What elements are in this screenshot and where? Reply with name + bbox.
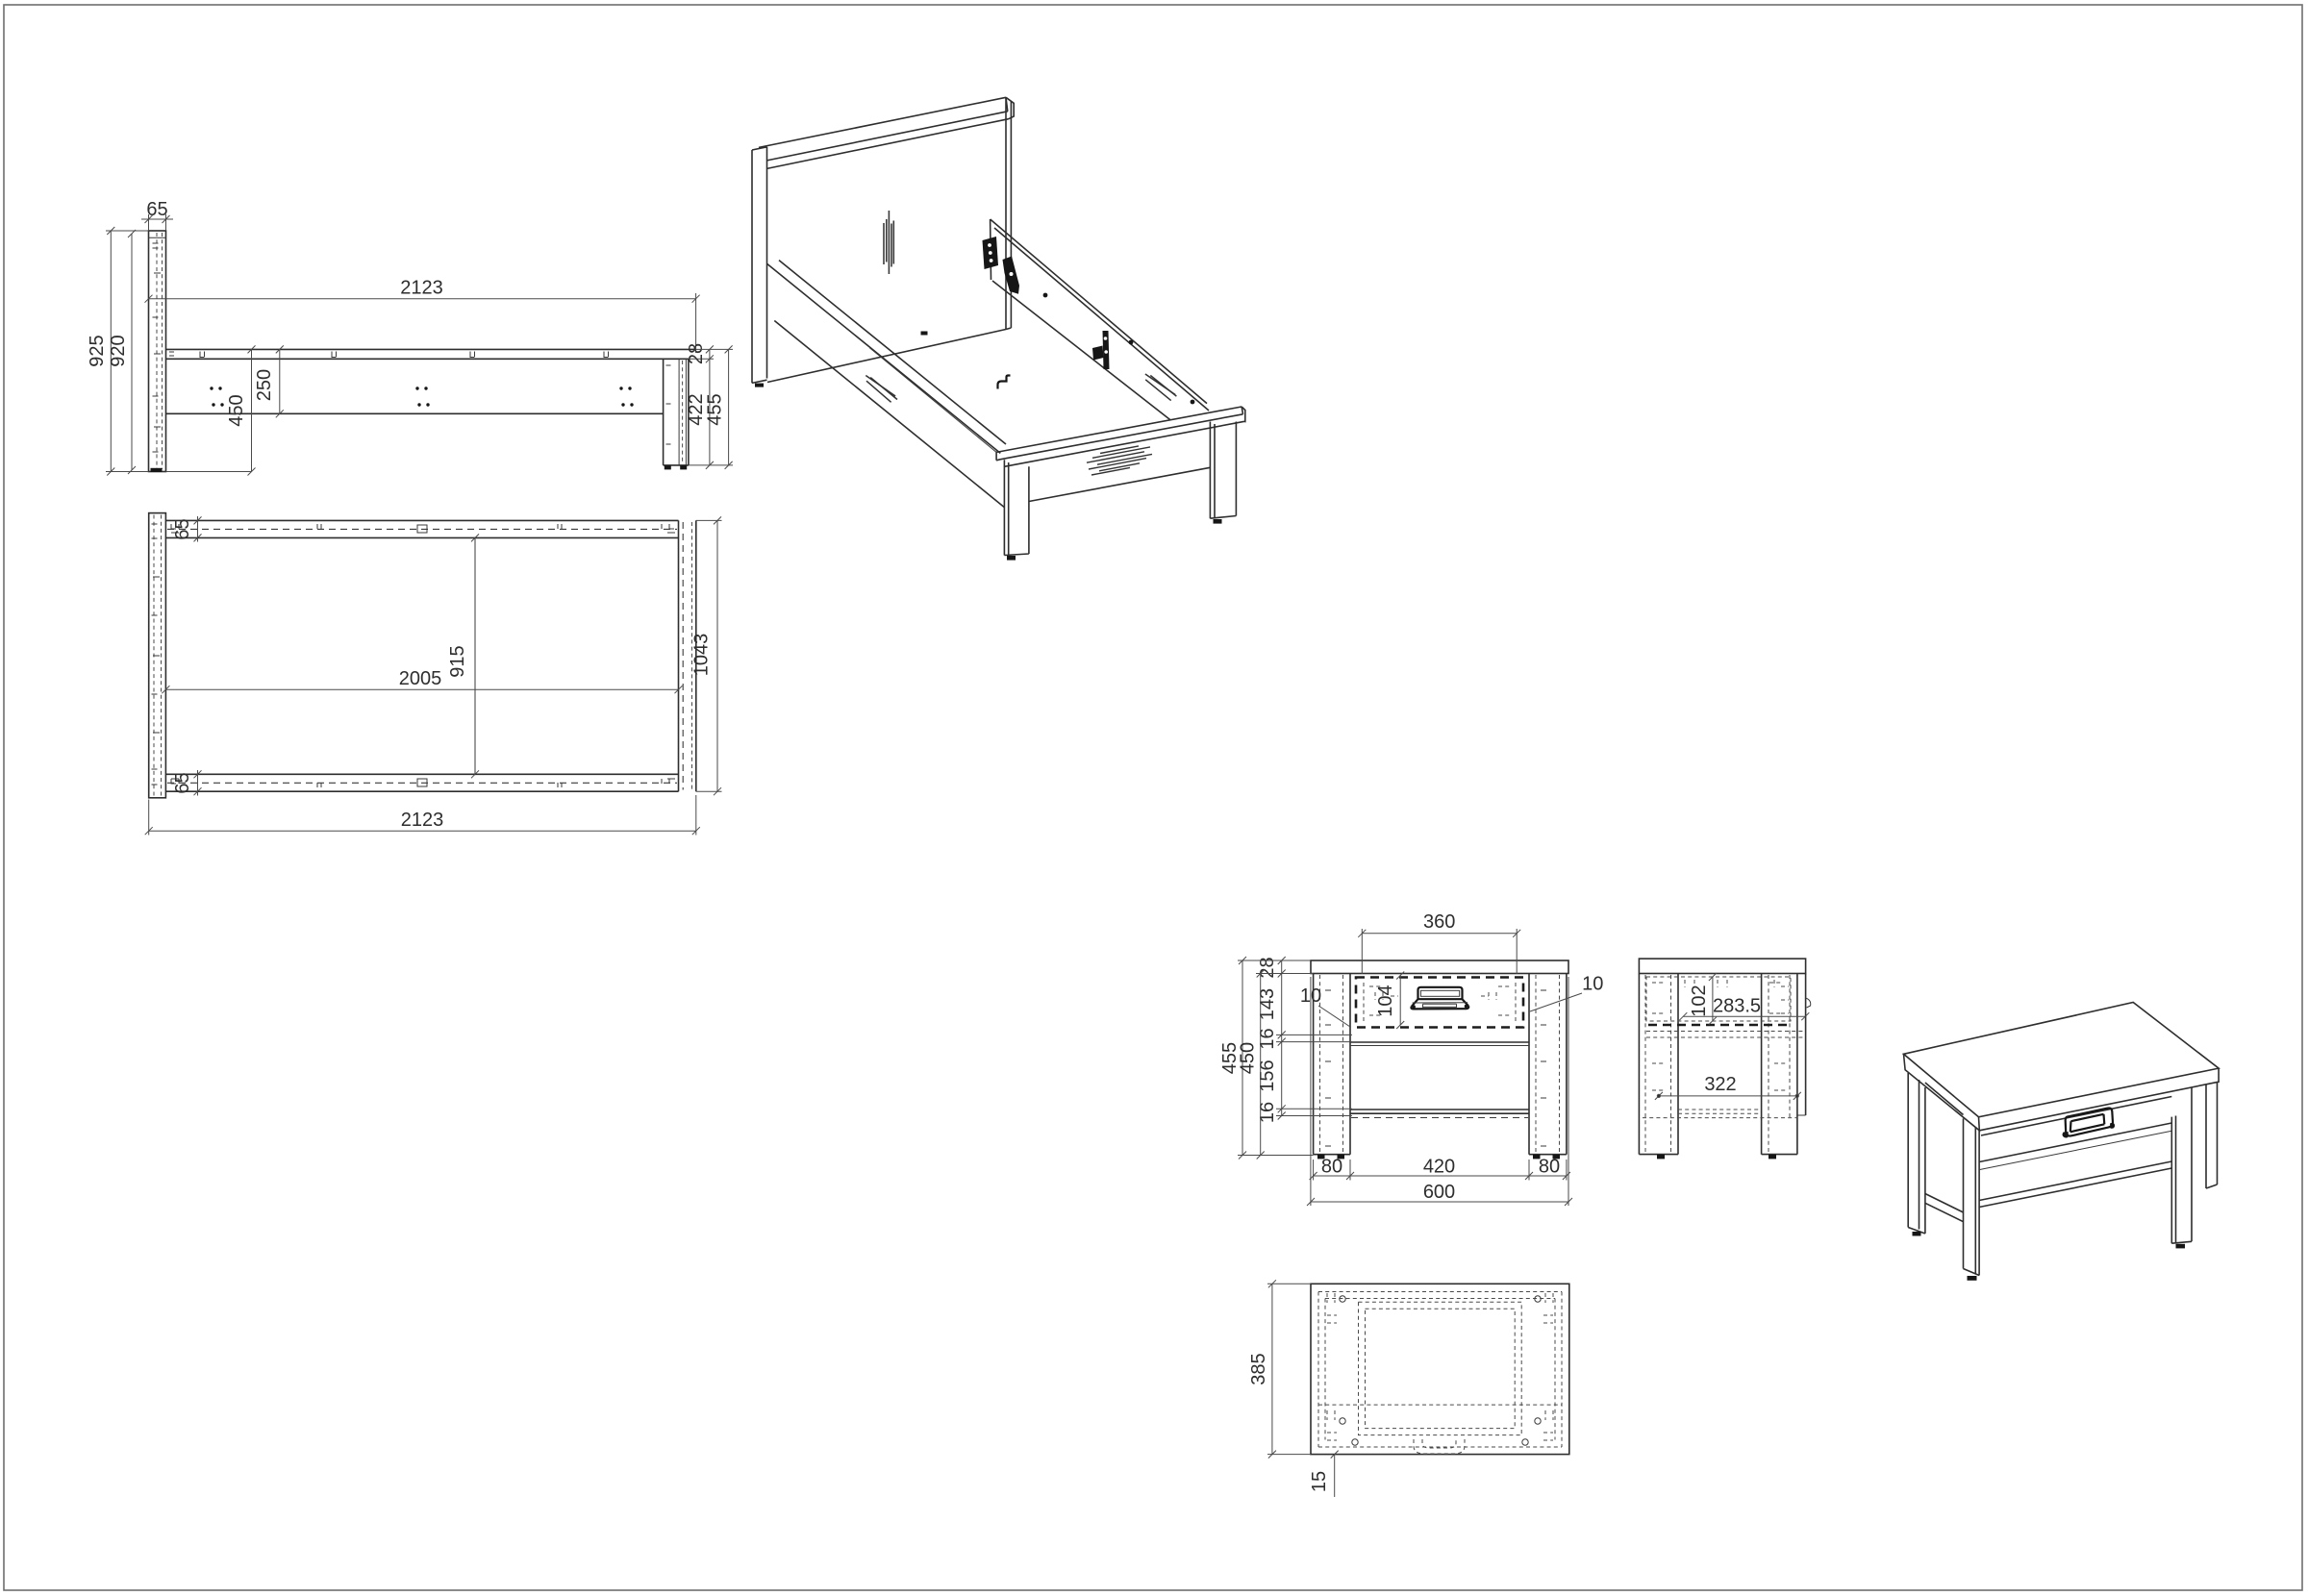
svg-text:360: 360 <box>1423 911 1455 933</box>
svg-text:104: 104 <box>1375 985 1396 1016</box>
svg-text:15: 15 <box>1309 1471 1330 1492</box>
svg-text:2005: 2005 <box>399 668 442 689</box>
svg-text:925: 925 <box>87 335 108 366</box>
svg-text:450: 450 <box>226 394 247 426</box>
svg-text:2123: 2123 <box>401 810 444 831</box>
svg-text:80: 80 <box>1539 1157 1560 1178</box>
svg-text:600: 600 <box>1423 1182 1455 1203</box>
svg-text:10: 10 <box>1582 974 1603 995</box>
svg-text:28: 28 <box>686 343 707 364</box>
svg-text:102: 102 <box>1689 985 1710 1016</box>
svg-text:283.5: 283.5 <box>1713 996 1761 1017</box>
svg-text:455: 455 <box>705 393 726 425</box>
svg-text:1043: 1043 <box>691 634 713 677</box>
svg-text:322: 322 <box>1704 1074 1736 1095</box>
svg-text:65: 65 <box>172 772 193 793</box>
svg-text:450: 450 <box>1238 1042 1259 1074</box>
svg-text:420: 420 <box>1423 1157 1455 1178</box>
svg-text:65: 65 <box>146 199 167 220</box>
svg-text:915: 915 <box>447 645 468 677</box>
svg-text:385: 385 <box>1248 1353 1269 1384</box>
svg-text:920: 920 <box>108 335 129 366</box>
svg-text:80: 80 <box>1321 1157 1342 1178</box>
svg-text:250: 250 <box>254 369 275 401</box>
svg-text:2123: 2123 <box>400 278 443 299</box>
svg-text:65: 65 <box>172 518 193 539</box>
